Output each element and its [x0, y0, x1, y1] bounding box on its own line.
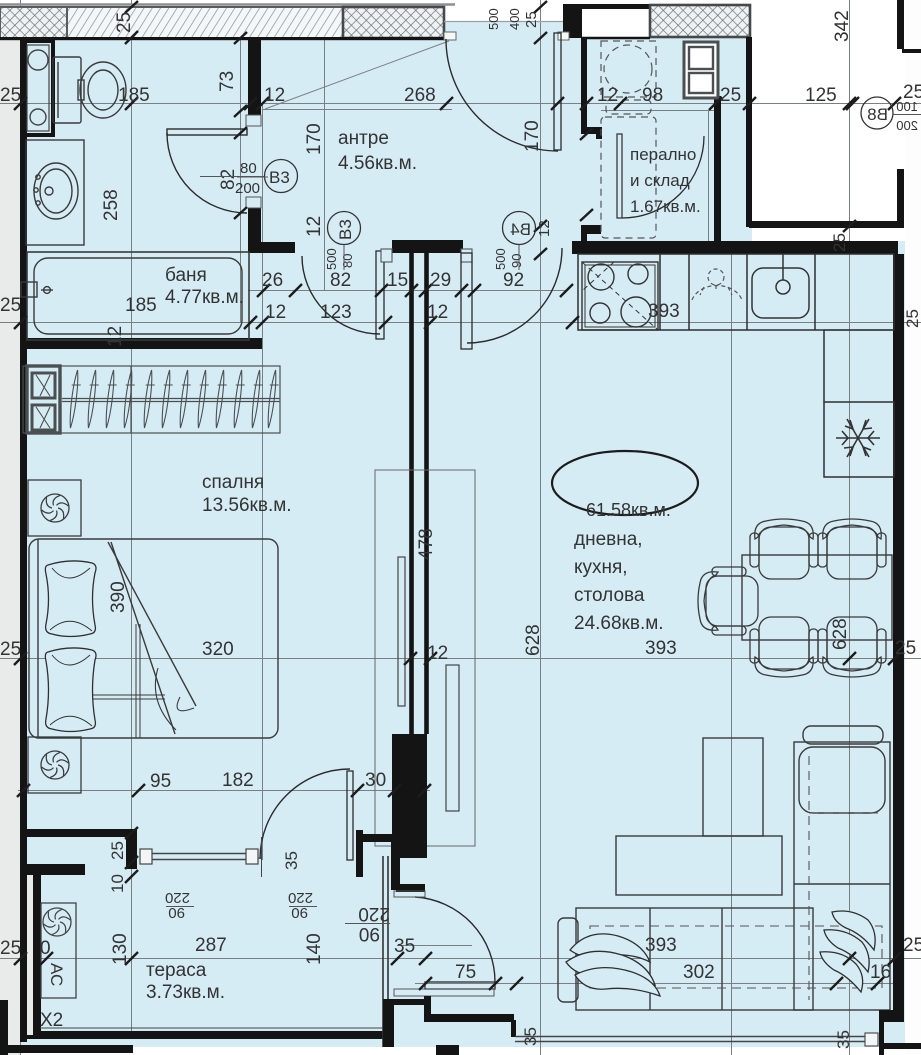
svg-text:400: 400 — [507, 8, 522, 30]
svg-text:628: 628 — [523, 624, 544, 656]
svg-text:130: 130 — [110, 933, 131, 965]
svg-text:393: 393 — [648, 301, 680, 322]
svg-text:170: 170 — [304, 123, 325, 155]
svg-text:АС: АС — [47, 963, 66, 986]
svg-text:12: 12 — [304, 216, 325, 237]
svg-text:35: 35 — [282, 851, 301, 870]
svg-text:92: 92 — [503, 270, 524, 291]
svg-text:В8: В8 — [867, 105, 888, 124]
svg-text:61.58кв.м.: 61.58кв.м. — [586, 500, 671, 520]
svg-text:35: 35 — [394, 936, 415, 957]
svg-text:10: 10 — [108, 874, 127, 893]
svg-text:12: 12 — [264, 85, 285, 106]
svg-text:25: 25 — [830, 233, 849, 252]
svg-text:220: 220 — [165, 889, 190, 906]
svg-text:25: 25 — [903, 935, 921, 956]
svg-text:393: 393 — [645, 638, 677, 659]
svg-text:29: 29 — [430, 270, 451, 291]
svg-text:12: 12 — [105, 326, 126, 347]
svg-text:30: 30 — [365, 770, 386, 791]
svg-text:75: 75 — [455, 962, 476, 983]
svg-text:35: 35 — [521, 1027, 540, 1046]
svg-text:26: 26 — [262, 270, 283, 291]
svg-text:393: 393 — [645, 935, 677, 956]
svg-text:25: 25 — [903, 309, 921, 328]
svg-text:123: 123 — [320, 302, 352, 323]
svg-text:258: 258 — [101, 189, 122, 221]
svg-text:баня: баня — [165, 265, 207, 286]
svg-text:73: 73 — [217, 71, 238, 92]
svg-text:200: 200 — [235, 180, 260, 197]
svg-text:25: 25 — [895, 638, 916, 659]
svg-text:16: 16 — [870, 962, 891, 983]
svg-text:628: 628 — [830, 618, 851, 650]
svg-text:25: 25 — [720, 85, 741, 106]
svg-text:дневна,: дневна, — [574, 529, 643, 550]
svg-text:антре: антре — [338, 128, 389, 149]
svg-text:100: 100 — [896, 99, 918, 114]
svg-text:В4: В4 — [510, 220, 531, 239]
svg-text:12: 12 — [265, 302, 286, 323]
svg-text:185: 185 — [125, 295, 157, 316]
svg-text:500: 500 — [324, 248, 339, 270]
svg-text:170: 170 — [522, 120, 543, 152]
svg-text:90: 90 — [509, 254, 524, 268]
svg-text:12: 12 — [427, 643, 448, 664]
svg-text:140: 140 — [304, 933, 325, 965]
svg-text:25: 25 — [0, 639, 21, 660]
svg-text:25: 25 — [0, 295, 21, 316]
svg-text:13.56кв.м.: 13.56кв.м. — [202, 495, 292, 516]
svg-text:X2: X2 — [40, 1010, 63, 1031]
svg-text:кухня,: кухня, — [574, 557, 628, 578]
svg-text:0: 0 — [40, 938, 51, 959]
svg-text:тераса: тераса — [146, 960, 207, 981]
svg-text:4.77кв.м.: 4.77кв.м. — [165, 287, 244, 308]
svg-text:12: 12 — [597, 85, 618, 106]
svg-text:25: 25 — [108, 841, 127, 860]
svg-text:и склад: и склад — [630, 171, 690, 190]
svg-text:478: 478 — [416, 528, 437, 560]
svg-text:24.68кв.м.: 24.68кв.м. — [574, 613, 664, 634]
svg-text:125: 125 — [805, 85, 837, 106]
svg-text:98: 98 — [642, 85, 663, 106]
svg-text:80: 80 — [240, 160, 257, 177]
svg-text:390: 390 — [108, 581, 129, 613]
svg-text:В3: В3 — [336, 219, 355, 240]
svg-text:спалня: спалня — [202, 472, 264, 493]
svg-text:200: 200 — [896, 118, 918, 133]
svg-text:80: 80 — [340, 254, 355, 268]
svg-text:25: 25 — [523, 11, 540, 28]
svg-text:1.67кв.м.: 1.67кв.м. — [630, 197, 701, 216]
svg-text:3.73кв.м.: 3.73кв.м. — [146, 982, 225, 1003]
svg-text:95: 95 — [150, 771, 171, 792]
svg-text:500: 500 — [493, 248, 508, 270]
svg-text:В3: В3 — [269, 168, 290, 187]
svg-text:90: 90 — [359, 923, 380, 944]
svg-text:220: 220 — [358, 903, 390, 924]
svg-text:220: 220 — [288, 889, 313, 906]
svg-text:182: 182 — [222, 770, 254, 791]
svg-text:35: 35 — [834, 1030, 853, 1049]
svg-text:268: 268 — [404, 85, 436, 106]
svg-text:500: 500 — [486, 8, 501, 30]
svg-text:4.56кв.м.: 4.56кв.м. — [338, 153, 417, 174]
svg-text:15: 15 — [387, 270, 408, 291]
svg-text:12: 12 — [536, 220, 553, 237]
svg-text:287: 287 — [195, 935, 227, 956]
svg-text:302: 302 — [683, 962, 715, 983]
svg-text:185: 185 — [118, 85, 150, 106]
svg-text:25: 25 — [114, 12, 135, 33]
svg-text:342: 342 — [832, 10, 853, 42]
svg-text:82: 82 — [330, 270, 351, 291]
svg-text:25: 25 — [0, 938, 21, 959]
svg-text:столова: столова — [574, 585, 645, 606]
svg-text:320: 320 — [202, 639, 234, 660]
svg-text:перално: перално — [630, 145, 696, 164]
svg-text:25: 25 — [0, 85, 21, 106]
svg-text:12: 12 — [427, 302, 448, 323]
